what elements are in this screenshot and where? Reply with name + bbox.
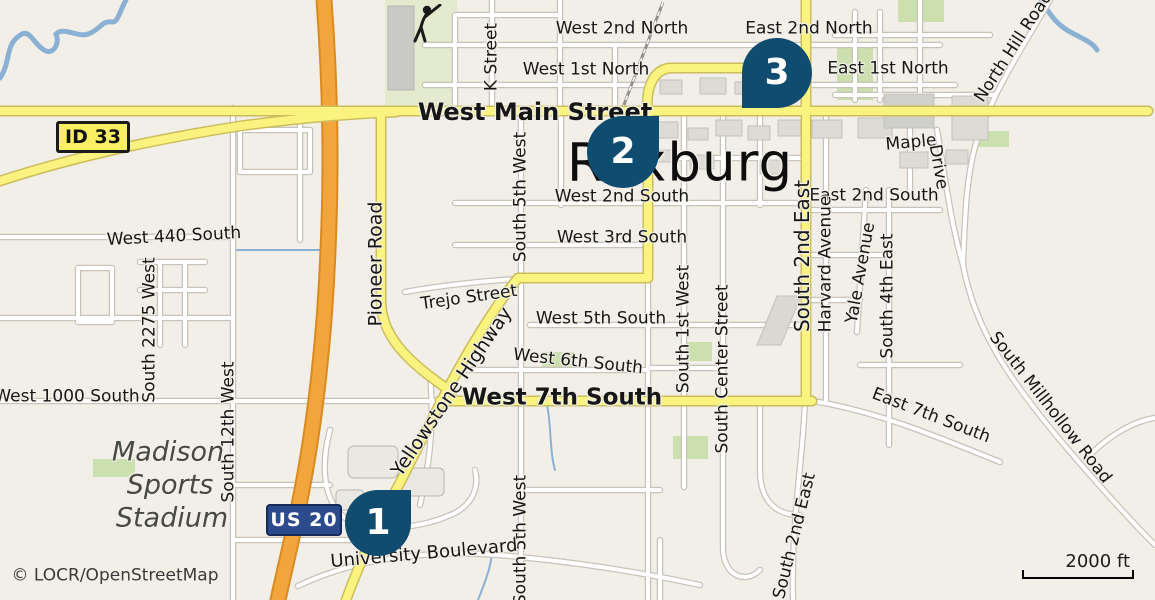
street-label-west-2nd-north: West 2nd North bbox=[556, 21, 689, 38]
route-shield-us20-label: US 20 bbox=[270, 509, 337, 531]
street-label-south-12th-west: South 12th West bbox=[221, 361, 238, 502]
street-label-west-7th-south: West 7th South bbox=[462, 387, 662, 410]
place-label-sports: Sports bbox=[127, 472, 214, 499]
map-marker-3[interactable]: 3 bbox=[742, 38, 812, 108]
street-label-west-3rd-south: West 3rd South bbox=[557, 230, 687, 247]
map-attribution: © LOCR/OpenStreetMap bbox=[12, 568, 219, 585]
street-label-south-2275-west: South 2275 West bbox=[142, 257, 159, 402]
street-label-south-4th-east: South 4th East bbox=[880, 233, 897, 358]
map-marker-3-number: 3 bbox=[764, 52, 789, 93]
street-label-harvard-avenue: Harvard Avenue bbox=[818, 196, 835, 333]
street-label-pioneer-road: Pioneer Road bbox=[367, 202, 386, 327]
route-shield-id33: ID 33 bbox=[56, 121, 130, 153]
place-label-madison: Madison bbox=[112, 439, 224, 466]
street-label-west-1st-north: West 1st North bbox=[523, 62, 650, 79]
route-shield-id33-label: ID 33 bbox=[65, 126, 121, 148]
street-label-east-1st-north: East 1st North bbox=[827, 61, 948, 78]
street-label-south-2nd-east-upper: South 2nd East bbox=[792, 180, 812, 332]
map-marker-2[interactable]: 2 bbox=[587, 116, 659, 188]
street-label-south-1st-west: South 1st West bbox=[676, 265, 693, 393]
street-label-south-5th-west-upper: South 5th West bbox=[513, 132, 530, 262]
map-marker-1-number: 1 bbox=[365, 502, 390, 543]
golfer-icon bbox=[408, 4, 442, 48]
street-label-west-5th-south: West 5th South bbox=[536, 311, 666, 328]
route-shield-us20: US 20 bbox=[266, 504, 342, 536]
street-label-k-street: K Street bbox=[484, 23, 501, 91]
street-label-east-2nd-north: East 2nd North bbox=[745, 21, 872, 38]
map-canvas[interactable]: West 2nd North East 2nd North West 1st N… bbox=[0, 0, 1155, 600]
scale-label: 2000 ft bbox=[1022, 551, 1130, 572]
map-marker-1[interactable]: 1 bbox=[345, 490, 411, 556]
scale-bar bbox=[1022, 570, 1134, 579]
street-label-south-center-street: South Center Street bbox=[715, 284, 732, 453]
place-label-stadium: Stadium bbox=[116, 505, 228, 532]
street-label-west-1000-south: West 1000 South bbox=[0, 389, 140, 406]
map-marker-2-number: 2 bbox=[610, 131, 635, 172]
